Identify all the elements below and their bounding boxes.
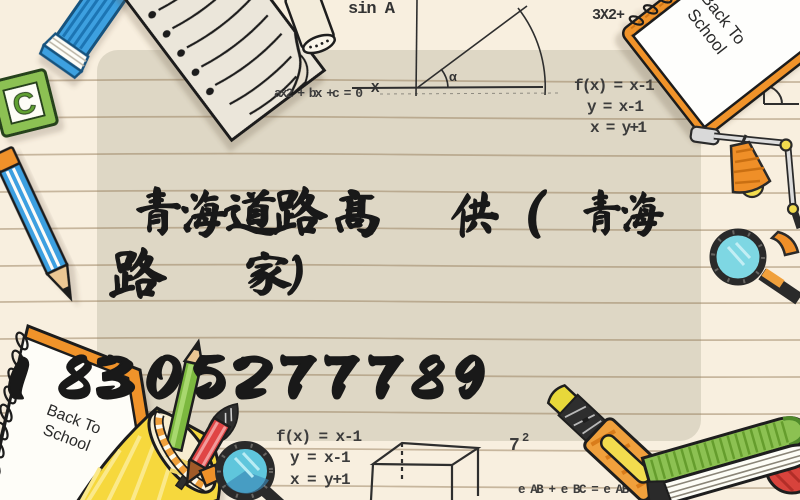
svg-text:e AB + e BC = e AB: e AB + e BC = e AB — [518, 483, 630, 497]
svg-text:ax2 + bx +c = 0: ax2 + bx +c = 0 — [274, 86, 363, 101]
svg-text:α: α — [449, 70, 457, 85]
svg-text:y = x-1: y = x-1 — [290, 449, 350, 467]
svg-text:sin A: sin A — [348, 0, 396, 19]
svg-text:f(x) = x-1: f(x) = x-1 — [276, 428, 362, 446]
svg-text:x = y+1: x = y+1 — [290, 471, 350, 489]
svg-text:2: 2 — [522, 431, 529, 445]
svg-text:X: X — [371, 81, 380, 97]
svg-text:7: 7 — [509, 436, 520, 456]
svg-text:x = y+1: x = y+1 — [590, 119, 646, 137]
svg-text:3X2+: 3X2+ — [592, 7, 625, 24]
svg-text:y = x-1: y = x-1 — [587, 98, 643, 116]
svg-text:f(x) = x-1: f(x) = x-1 — [574, 77, 654, 95]
